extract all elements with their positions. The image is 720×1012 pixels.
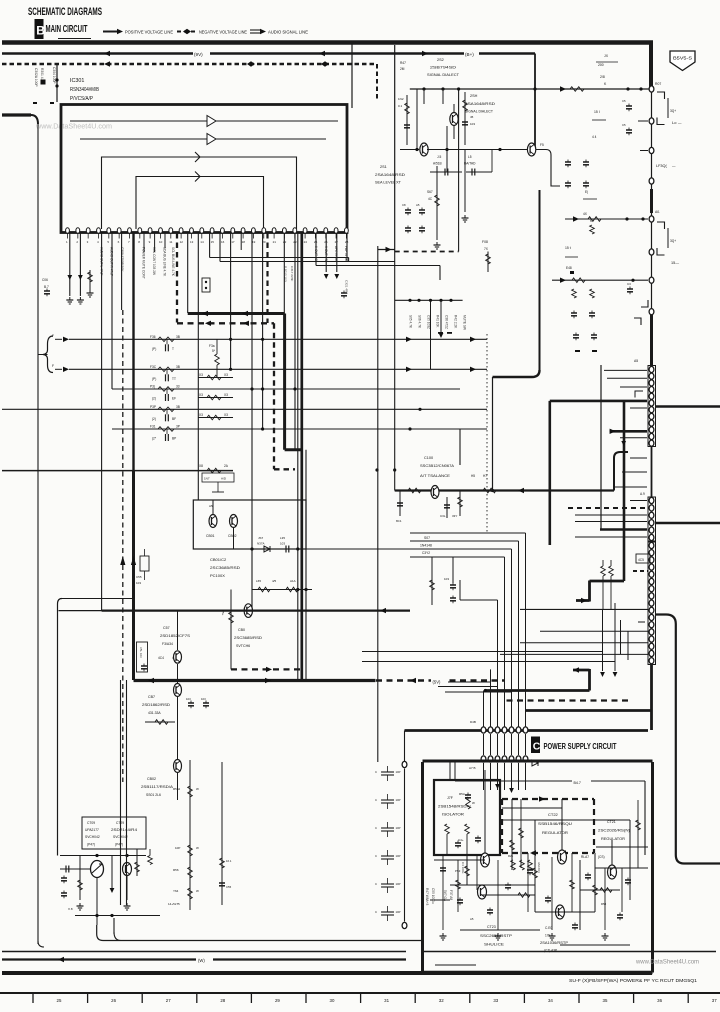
svg-text:C57: C57 [163,626,170,630]
svg-text:C: C [375,910,377,914]
svg-text:26: 26 [111,998,116,1003]
svg-text:2SD2144/R4: 2SD2144/R4 [111,828,137,832]
svg-text:2SC3685/RSD: 2SC3685/RSD [210,565,240,570]
svg-text:P3P: P3P [150,405,156,409]
svg-text:3Q+: 3Q+ [670,239,676,243]
svg-text:POSITIVE VOLTAGE LINE: POSITIVE VOLTAGE LINE [125,30,173,35]
svg-text:1N7: 1N7 [204,477,210,481]
svg-text:CB02: CB02 [228,534,237,538]
svg-text:2SH: 2SH [470,94,478,98]
svg-text:34: 34 [548,998,553,1003]
svg-text:16: 16 [221,240,225,244]
svg-text:(9V): (9V) [194,52,203,57]
svg-text:F3a: F3a [209,344,215,348]
svg-text:B.7: B.7 [44,285,49,289]
svg-text:CT23: CT23 [487,925,496,929]
svg-text:(CS): (CS) [598,855,605,859]
svg-text:103: 103 [201,697,206,701]
svg-text:2SA1036/RSTP: 2SA1036/RSTP [540,941,568,945]
svg-text:VOL CONT 103 2W: VOL CONT 103 2W [152,247,156,275]
svg-text:F08: F08 [482,240,488,244]
svg-text:MUTE SW: MUTE SW [462,315,466,330]
svg-text:A/T TSALANCE: A/T TSALANCE [420,474,451,478]
svg-text:A\D: A\D [221,477,227,481]
svg-text:—: — [678,121,682,125]
svg-text:(P): (P) [152,377,156,381]
svg-text:SDA BUS LINE 4.7K: SDA BUS LINE 4.7K [162,247,166,277]
svg-text:L35: L35 [280,536,285,540]
svg-text:POWER SUPPLY CIRCUIT: POWER SUPPLY CIRCUIT [544,742,617,751]
svg-text:4/5: 4/5 [272,579,277,583]
svg-text:0.1: 0.1 [398,104,403,108]
svg-text:103: 103 [444,577,449,581]
svg-text:EF: EF [172,397,176,401]
svg-text:JS7: JS7 [258,536,264,540]
svg-text:R5A: R5A [459,792,465,796]
svg-text:SCL BUS LINE 4.7K: SCL BUS LINE 4.7K [171,247,175,277]
svg-text:H5: H5 [471,474,475,478]
svg-text:C321 4R7: C321 4R7 [345,280,349,294]
svg-text:14: 14 [200,240,204,244]
svg-text:4C5: 4C5 [638,558,644,562]
svg-text:25: 25 [57,998,62,1003]
svg-text:2SD1852/CF7S: 2SD1852/CF7S [160,634,191,638]
svg-text:10: 10 [159,240,163,244]
svg-text:X3: X3 [199,413,203,417]
svg-text:R47: R47 [400,61,406,65]
svg-text:2SB1117/RSD/A: 2SB1117/RSD/A [141,785,174,789]
svg-text:LF3Q(: LF3Q( [656,164,667,168]
svg-text:2S1: 2S1 [380,165,387,169]
svg-text:Lo: Lo [672,120,677,125]
svg-text:D4B: D4B [470,720,476,724]
svg-text:SVTCH6: SVTCH6 [236,644,250,648]
svg-text:X.8: X.8 [68,907,73,911]
svg-text:3P: 3P [176,425,180,429]
svg-text:T: T [172,347,174,351]
svg-text:F36: F36 [150,335,156,339]
svg-text:2M: 2M [400,67,405,71]
svg-text:REGULATOR: REGULATOR [601,837,625,841]
svg-text:BP: BP [172,437,176,441]
svg-text:F: F [52,334,54,338]
svg-text:(W): (W) [198,958,205,963]
svg-text:12: 12 [180,240,184,244]
svg-text:P B2 P 103: P B2 P 103 [284,266,288,282]
svg-text:S07: S07 [424,536,430,540]
svg-text:30: 30 [330,998,335,1003]
svg-text:C8: C8 [402,203,406,207]
svg-text:16.1: 16.1 [226,859,232,863]
svg-text:15—: 15— [671,261,679,265]
svg-text:P/VCS/A/P: P/VCS/A/P [70,96,93,102]
svg-text:C3L: C3L [440,514,446,518]
svg-text:SU-F (X)FB/SFP(WA) POWER& PF Y: SU-F (X)FB/SFP(WA) POWER& PF YC RCUT DMG… [569,978,698,983]
svg-text:32: 32 [439,998,444,1003]
svg-text:www.DataSheet4U.com: www.DataSheet4U.com [635,959,699,966]
svg-text:B5V5-S: B5V5-S [673,56,692,61]
svg-text:J.5: J.5 [437,155,441,159]
svg-text:—: — [672,164,676,168]
svg-text:X3: X3 [224,413,228,417]
svg-text:33: 33 [493,998,498,1003]
svg-text:AUDIO SIGNAL LINE: AUDIO SIGNAL LINE [268,30,308,35]
svg-text:X3: X3 [224,373,228,377]
svg-text:4 4: 4 4 [592,135,597,139]
svg-text:103: 103 [136,581,141,585]
svg-text:A/51B: A/51B [433,162,442,166]
svg-text:33Y: 33Y [452,514,457,518]
svg-text:C4 100u: C4 100u [461,862,465,874]
svg-text:B4.7: B4.7 [574,781,581,785]
svg-text:10P: 10P [396,798,401,802]
svg-text:SSC3B12/CN067A: SSC3B12/CN067A [420,464,455,468]
svg-text:W: W [472,801,475,805]
svg-text:J7F: J7F [447,796,454,800]
svg-text:C3Y2: C3Y2 [422,551,430,555]
svg-text:F31: F31 [150,425,156,429]
svg-text:E): E) [585,190,588,194]
svg-text:103: 103 [186,697,191,701]
svg-text:NEGATIVE VOLTAGE LINE: NEGATIVE VOLTAGE LINE [199,30,247,35]
svg-text:H7: H7 [483,474,487,478]
svg-text:CB0: CB0 [238,628,245,632]
svg-text:3Q+: 3Q+ [670,109,676,113]
svg-text:CT22: CT22 [548,812,559,817]
svg-text:(2): (2) [152,417,156,421]
svg-text:10P: 10P [396,882,401,886]
svg-text:2/8: 2/8 [600,75,605,79]
svg-text:POWER MUTE CONT: POWER MUTE CONT [141,247,145,279]
svg-text:X3: X3 [224,393,228,397]
svg-text:PS3: PS3 [455,869,461,873]
svg-text:L65: L65 [256,579,261,583]
svg-text:2S2: 2S2 [437,58,444,62]
svg-text:SS01 2L6: SS01 2L6 [146,793,161,797]
svg-text:C5: C5 [622,99,626,103]
svg-text:A.9: A.9 [640,492,645,496]
svg-text:W: W [196,787,199,791]
svg-text:3B: 3B [176,365,180,369]
svg-text:R21: R21 [508,854,514,858]
svg-text:W: W [196,846,199,850]
svg-text:29: 29 [275,998,280,1003]
svg-text:(B+): (B+) [465,52,474,57]
svg-text:CT09: CT09 [87,821,95,825]
svg-text:SSB1546/RSQU: SSB1546/RSQU [538,821,572,826]
svg-text:A1A: A1A [290,579,296,583]
svg-text:4C: 4C [428,197,433,201]
svg-text:A0.: A0. [655,210,660,214]
svg-text:2SA1648/RSD: 2SA1648/RSD [465,102,495,106]
svg-text:10P: 10P [396,770,401,774]
svg-text:10P: 10P [396,854,401,858]
svg-text:C: C [375,826,377,830]
svg-text:(P): (P) [152,347,156,351]
svg-text:BF: BF [172,417,176,421]
svg-text:W: W [196,889,199,893]
svg-text:F37 A8: F37 A8 [449,890,453,900]
svg-text:24: 24 [304,240,308,244]
svg-text:C: C [533,741,541,753]
svg-text:2SC2026/RS(N): 2SC2026/RS(N) [598,829,630,833]
svg-text:C317 223F: C317 223F [290,266,294,281]
svg-text:C: C [375,854,377,858]
svg-text:IC301: IC301 [70,78,84,84]
svg-text:A7 B: A7 B [469,766,476,770]
svg-text:P3): P3) [150,385,155,389]
svg-text:431.33A: 431.33A [148,711,161,715]
svg-text:S06 4.7K: S06 4.7K [417,315,421,329]
svg-text:15 t: 15 t [565,246,571,250]
svg-text:10P: 10P [175,846,180,850]
svg-text:CB7: CB7 [148,695,155,699]
svg-text:F3C: F3C [150,365,157,369]
svg-text:1N4148: 1N4148 [420,544,432,548]
svg-text:103: 103 [280,542,285,546]
svg-text:DA/TAD: DA/TAD [464,162,476,166]
svg-text:4C4: 4C4 [158,656,164,660]
svg-text:Y64: Y64 [173,889,179,893]
svg-text:18: 18 [242,240,246,244]
svg-text:P5+: P5+ [221,610,225,616]
svg-text:C36 472Z: C36 472Z [444,315,448,329]
svg-text:15 I: 15 I [594,110,600,114]
svg-text:ISOLATOR: ISOLATOR [442,813,464,817]
svg-text:E48: E48 [566,266,572,270]
svg-text:35: 35 [603,998,608,1003]
svg-text:MAIN CIRCUIT: MAIN CIRCUIT [46,23,88,35]
svg-text:13: 13 [190,240,194,244]
svg-text:2SC3685/RSD: 2SC3685/RSD [234,636,262,640]
svg-text:C55: C55 [136,575,142,579]
svg-text:REGULATOR: REGULATOR [542,830,568,835]
svg-text:3B: 3B [176,405,180,409]
svg-text:X3: X3 [199,373,203,377]
svg-text:C3: C3 [627,282,631,286]
svg-text:X8: X8 [199,464,203,468]
svg-text:14+5LT5: 14+5LT5 [168,902,180,906]
svg-text:R47 W8A+3: R47 W8A+3 [425,888,429,906]
svg-text:SCHEMATIC DIAGRAMS: SCHEMATIC DIAGRAMS [28,6,102,18]
svg-text:SVCH042: SVCH042 [85,835,100,839]
svg-text:CB01/C2: CB01/C2 [210,557,227,562]
svg-text:C55: C55 [226,885,232,889]
svg-text:C302A 100P: C302A 100P [34,68,38,87]
svg-text:31: 31 [384,998,389,1003]
svg-text:15: 15 [211,240,215,244]
svg-text:45: 45 [470,115,474,119]
svg-text:F3/A34: F3/A34 [162,642,173,646]
svg-text:www.DataSheet4U.com: www.DataSheet4U.com [35,122,112,131]
svg-text:SIGNAL DIALECT: SIGNAL DIALECT [427,73,460,77]
svg-text:C06: C06 [42,278,48,282]
svg-text:S67: S67 [427,190,433,194]
svg-text:R07: R07 [655,82,661,86]
svg-text:B: B [36,24,45,38]
svg-text:3B: 3B [176,335,180,339]
svg-text:37: 37 [712,998,717,1003]
svg-text:SIGNAL DIALECT: SIGNAL DIALECT [465,110,493,114]
svg-text:(P47): (P47) [87,843,95,847]
svg-text:F: F [52,364,54,368]
svg-text:X3: X3 [199,393,203,397]
svg-text:A5: A5 [416,203,420,207]
svg-text:R42 2.2K: R42 2.2K [453,315,457,329]
svg-text:(P47): (P47) [115,843,123,847]
svg-text:33: 33 [176,385,180,389]
svg-text:3AFZ04: 3AFZ04 [537,862,541,873]
svg-text:R53: R53 [601,902,607,906]
svg-text:C: C [375,882,377,886]
svg-text:C55 1000u: C55 1000u [431,888,435,904]
svg-text:R56: R56 [173,868,179,872]
svg-text:(2): (2) [152,397,156,401]
svg-text:CB01: CB01 [206,534,215,538]
svg-text:A5: A5 [209,504,213,508]
svg-text:SHULICE: SHULICE [484,943,505,947]
svg-text:1N2: 1N2 [398,97,404,101]
svg-text:C100: C100 [424,456,433,460]
svg-text:CB02: CB02 [147,777,156,781]
svg-text:C: C [375,798,377,802]
svg-text:2SA1648/RSD: 2SA1648/RSD [375,173,405,177]
svg-text:10P: 10P [396,826,401,830]
svg-text:11: 11 [169,240,172,244]
svg-text:200: 200 [598,63,604,67]
svg-text:R552: R552 [173,787,181,791]
svg-text:C4+: C4+ [458,838,464,842]
svg-text:N37A: N37A [257,542,265,546]
svg-text:21: 21 [273,240,277,244]
svg-text:103: 103 [470,122,475,126]
svg-text:C304 100P: C304 100P [52,67,56,84]
svg-text:27: 27 [166,998,171,1003]
svg-text:L5: L5 [468,155,472,159]
svg-text:C: C [375,770,377,774]
svg-text:X5L 103: X5L 103 [139,647,143,658]
svg-text:F5: F5 [540,143,544,147]
svg-text:UPA2177: UPA2177 [85,828,99,832]
svg-text:A5: A5 [634,359,638,363]
svg-text:(5V): (5V) [433,680,442,685]
svg-text:RSN3404#M/B: RSN3404#M/B [70,87,99,93]
svg-text:PC100X: PC100X [210,573,225,578]
svg-text:C5: C5 [622,123,626,127]
svg-text:A5: A5 [470,917,474,921]
svg-text:RLA7: RLA7 [581,855,589,859]
svg-text:8C1: 8C1 [396,519,402,523]
svg-text:10P: 10P [396,910,401,914]
svg-text:R41 10K: R41 10K [435,315,439,328]
svg-text:17: 17 [231,240,235,244]
svg-text:S05 4.7K: S05 4.7K [408,315,412,329]
svg-text:C35 103Z: C35 103Z [426,315,430,329]
svg-text:TT: TT [172,377,176,381]
svg-text:2SD1862/RSD: 2SD1862/RSD [142,703,170,707]
svg-text:CT21: CT21 [607,820,616,824]
svg-text:36: 36 [657,998,662,1003]
svg-text:SEA LEVEL XT: SEA LEVEL XT [375,181,401,185]
svg-text:2SB794SD: 2SB794SD [430,65,456,70]
svg-text:5V7 GA: 5V7 GA [443,890,447,902]
svg-text:C.E0: C.E0 [545,926,552,930]
svg-text:28: 28 [220,998,225,1003]
